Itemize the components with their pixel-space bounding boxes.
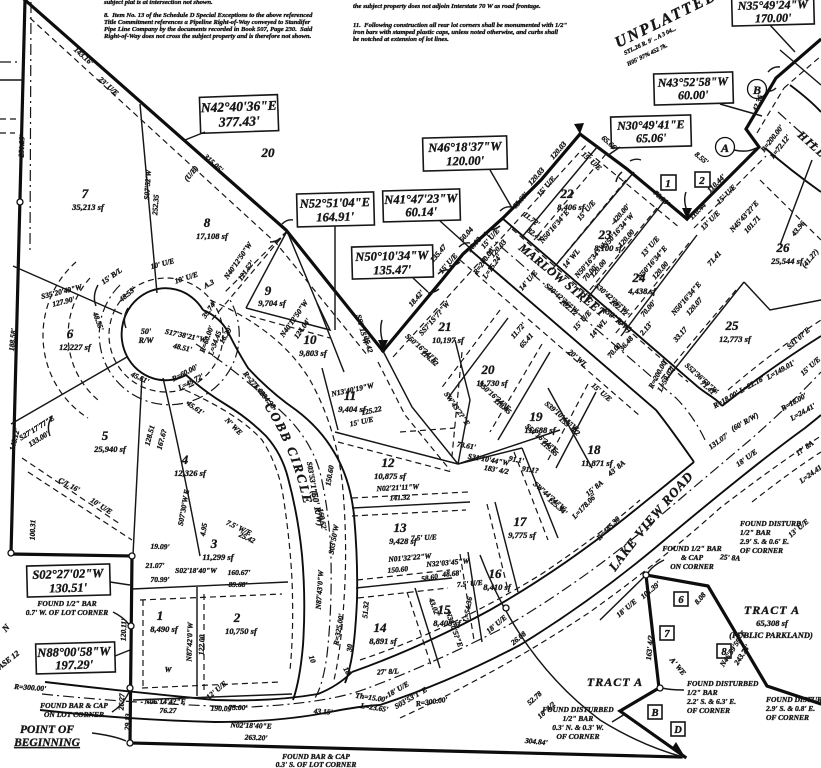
svg-text:TRACT A: TRACT A <box>587 675 643 689</box>
svg-text:8. Item No. 13 of the Schedul: 8. Item No. 13 of the Schedule D Special… <box>104 12 313 19</box>
svg-text:the subject property does not: the subject property does not adjoin Int… <box>353 3 541 10</box>
svg-text:N46°18'37"W: N46°18'37"W <box>427 139 502 155</box>
svg-text:N50°10'34"W: N50°10'34"W <box>354 248 429 264</box>
svg-text:377.43': 377.43' <box>218 113 261 129</box>
svg-text:1: 1 <box>665 178 671 190</box>
svg-text:OF CORNER: OF CORNER <box>766 713 809 722</box>
svg-text:29.13: 29.13 <box>123 713 133 732</box>
svg-text:27' 8/L: 27' 8/L <box>376 666 400 676</box>
svg-text:2: 2 <box>698 175 705 187</box>
svg-text:Title Commitment references a: Title Commitment references a Pipeline R… <box>104 19 311 26</box>
svg-text:9,704 sf: 9,704 sf <box>258 298 287 308</box>
svg-text:8: 8 <box>204 215 211 230</box>
svg-text:FOUND 1/2" BAR: FOUND 1/2" BAR <box>662 544 721 553</box>
svg-text:10: 10 <box>304 332 318 347</box>
svg-text:Pipe Line Company by the docum: Pipe Line Company by the documents recor… <box>104 26 313 33</box>
svg-text:2: 2 <box>233 610 241 625</box>
svg-text:20: 20 <box>481 362 496 377</box>
svg-text:0.3' S. OF LOT CORNER: 0.3' S. OF LOT CORNER <box>276 760 357 768</box>
svg-text:17,108 sf: 17,108 sf <box>196 231 229 241</box>
svg-text:60.14': 60.14' <box>405 205 437 220</box>
svg-text:25: 25 <box>725 318 740 333</box>
svg-text:10,197 sf: 10,197 sf <box>432 335 465 345</box>
svg-text:70.99': 70.99' <box>151 575 170 584</box>
svg-text:18: 18 <box>588 442 602 457</box>
svg-text:0.3' N. & 0.3' W.: 0.3' N. & 0.3' W. <box>552 723 604 732</box>
svg-text:60.00': 60.00' <box>678 88 709 103</box>
svg-text:160.67': 160.67' <box>228 568 251 577</box>
svg-text:8,410 sf: 8,410 sf <box>483 582 512 592</box>
svg-text:FOUND DISTURBED: FOUND DISTURBED <box>687 679 759 688</box>
svg-text:100.31: 100.31 <box>28 519 38 540</box>
svg-text:2.9' S. & 0.6' E.: 2.9' S. & 0.6' E. <box>739 537 789 546</box>
svg-text:26: 26 <box>776 240 791 255</box>
svg-text:D: D <box>673 725 682 736</box>
svg-text:25' 8A: 25' 8A <box>719 552 741 562</box>
svg-text:43.15': 43.15' <box>312 706 333 716</box>
svg-text:252.35: 252.35 <box>150 194 161 216</box>
svg-text:1/2" BAR: 1/2" BAR <box>740 528 771 537</box>
svg-text:26.27: 26.27 <box>117 693 127 712</box>
svg-text:be notched at extension of lot: be notched at extension of lot lines. <box>353 36 449 43</box>
svg-text:9,803 sf: 9,803 sf <box>299 348 328 358</box>
svg-text:1: 1 <box>157 608 164 623</box>
svg-text:120.00': 120.00' <box>446 153 485 168</box>
svg-text:N87'42'0"W: N87'42'0"W <box>184 621 194 663</box>
svg-text:13: 13 <box>394 520 408 535</box>
svg-text:A: A <box>720 141 729 155</box>
svg-text:B: B <box>650 708 658 719</box>
svg-text:& CAP: & CAP <box>681 553 704 562</box>
svg-text:10,750 sf: 10,750 sf <box>225 626 258 636</box>
svg-text:N52°51'04"E: N52°51'04"E <box>299 195 371 211</box>
svg-text:65,308 sf: 65,308 sf <box>756 618 789 628</box>
svg-text:FOUND BAR & CAP: FOUND BAR & CAP <box>40 701 108 710</box>
svg-text:120.11': 120.11' <box>119 619 129 642</box>
svg-text:1/2" BAR: 1/2" BAR <box>687 688 718 697</box>
svg-text:ON CORNER: ON CORNER <box>670 562 714 571</box>
svg-text:150.60: 150.60 <box>387 564 409 575</box>
svg-text:19: 19 <box>530 409 544 424</box>
svg-text:FOUND 1/2" BAR: FOUND 1/2" BAR <box>37 599 96 608</box>
svg-text:76.27: 76.27 <box>160 706 177 715</box>
svg-text:6: 6 <box>678 595 684 606</box>
svg-text:190.09': 190.09' <box>211 704 234 714</box>
svg-text:135.47': 135.47' <box>373 262 412 277</box>
svg-text:1/2" BAR: 1/2" BAR <box>563 714 594 723</box>
svg-text:12,326 sf: 12,326 sf <box>174 468 207 478</box>
svg-text:9: 9 <box>265 283 272 298</box>
svg-text:OF CORNER: OF CORNER <box>556 732 599 741</box>
svg-text:9,775 sf: 9,775 sf <box>508 530 537 540</box>
svg-text:130.51': 130.51' <box>49 580 88 595</box>
svg-text:11,299 sf: 11,299 sf <box>202 552 234 562</box>
svg-text:21.07': 21.07' <box>145 561 165 570</box>
svg-text:19.09': 19.09' <box>150 542 169 552</box>
svg-text:4,438 sf: 4,438 sf <box>627 286 657 296</box>
svg-text:14: 14 <box>374 620 388 635</box>
svg-text:251.25': 251.25' <box>17 134 27 158</box>
svg-text:BEGINNING: BEGINNING <box>13 737 81 749</box>
svg-text:OF CORNER: OF CORNER <box>740 546 783 555</box>
svg-text:141.32: 141.32 <box>389 492 410 502</box>
svg-text:7: 7 <box>664 629 670 640</box>
svg-text:12: 12 <box>382 455 396 470</box>
svg-text:25,940 sf: 25,940 sf <box>93 444 127 454</box>
svg-text:TRACT A: TRACT A <box>744 603 800 617</box>
svg-text:10,875 sf: 10,875 sf <box>374 471 407 481</box>
svg-text:8,891 sf: 8,891 sf <box>369 636 398 646</box>
svg-text:48.68': 48.68' <box>441 568 462 579</box>
svg-text:N06'14'4?"E: N06'14'4?"E <box>143 697 185 706</box>
svg-text:51.32: 51.32 <box>360 601 370 619</box>
svg-text:12,773 sf: 12,773 sf <box>719 334 752 344</box>
svg-text:30: 30 <box>345 643 355 653</box>
svg-text:20: 20 <box>261 145 276 160</box>
svg-text:197.29': 197.29' <box>55 657 94 672</box>
svg-text:S02'18'40"W: S02'18'40"W <box>175 566 218 575</box>
svg-text:R/W: R/W <box>138 336 155 345</box>
svg-text:Right-of-Way does not cross th: Right-of-Way does not cross the subject … <box>103 33 312 40</box>
svg-text:2.2' S. & 6.3' E.: 2.2' S. & 6.3' E. <box>686 697 736 706</box>
svg-text:7: 7 <box>82 186 89 201</box>
svg-text:N02'18'40"E: N02'18'40"E <box>229 720 272 730</box>
svg-text:POINT OF: POINT OF <box>20 724 74 736</box>
svg-text:89.68': 89.68' <box>229 580 248 589</box>
svg-text:50': 50' <box>141 327 152 336</box>
svg-text:11,871 sf: 11,871 sf <box>581 458 613 468</box>
svg-text:S02°27'02"W: S02°27'02"W <box>32 566 104 582</box>
svg-text:164.91': 164.91' <box>316 209 355 224</box>
svg-text:21: 21 <box>438 319 452 334</box>
svg-text:16: 16 <box>489 566 503 581</box>
svg-text:17: 17 <box>514 514 528 529</box>
svg-text:3: 3 <box>210 536 218 551</box>
svg-text:4: 4 <box>181 452 189 467</box>
svg-text:122.00: 122.00 <box>197 634 207 655</box>
svg-text:iron bars with stamped plastic: iron bars with stamped plastic caps, unl… <box>353 29 558 36</box>
svg-text:8,490 sf: 8,490 sf <box>150 624 179 634</box>
svg-text:2.9' S. & 0.8' E.: 2.9' S. & 0.8' E. <box>765 704 815 713</box>
svg-text:11. Following construction al: 11. Following construction all rear lot … <box>353 22 567 29</box>
svg-text:N42°40'36"E: N42°40'36"E <box>200 98 277 116</box>
svg-text:7.5' U/E: 7.5' U/E <box>411 532 437 542</box>
svg-text:5: 5 <box>102 428 109 443</box>
svg-text:22: 22 <box>560 186 575 201</box>
svg-text:12,227 sf: 12,227 sf <box>59 342 92 352</box>
svg-text:0.7' W. OF LOT CORNER: 0.7' W. OF LOT CORNER <box>26 608 109 617</box>
svg-text:263.20': 263.20' <box>244 733 268 743</box>
svg-text:subject plat is at intersectio: subject plat is at intersection not show… <box>103 0 213 6</box>
svg-text:FOUND DISTURBED: FOUND DISTURBED <box>766 695 821 704</box>
svg-text:65.06': 65.06' <box>636 131 667 146</box>
svg-text:ON LOT CORNER: ON LOT CORNER <box>44 710 104 719</box>
svg-text:170.00': 170.00' <box>755 11 792 26</box>
svg-text:OF CORNER: OF CORNER <box>687 706 730 715</box>
svg-text:35,213 sf: 35,213 sf <box>71 202 105 212</box>
svg-text:6: 6 <box>67 326 74 341</box>
